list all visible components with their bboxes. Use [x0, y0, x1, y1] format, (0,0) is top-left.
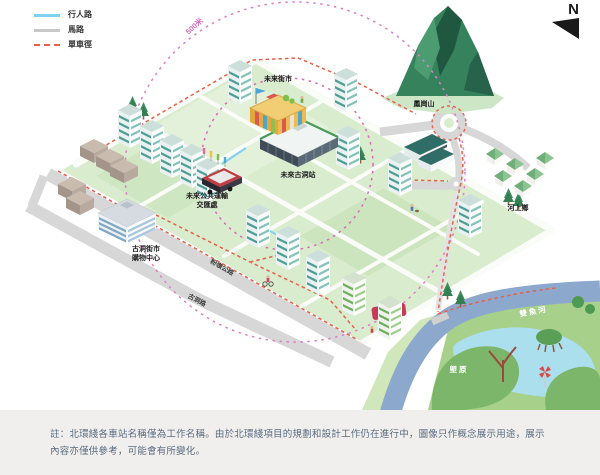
market-label: 未來街市: [264, 74, 292, 83]
footnote-bar: 註：北環綫各車站名稱僅為工作名稱。由於北環綫項目的規劃和設計工作仍在進行中，圖像…: [0, 410, 600, 475]
pedestrian-figure: [371, 326, 374, 333]
village-house: [514, 180, 532, 197]
round-tree: [585, 304, 595, 314]
tower-building: [118, 104, 142, 148]
tower-building: [306, 250, 330, 294]
tower-building-green: [378, 296, 402, 340]
pedestrian-figure: [301, 96, 304, 103]
compass: N: [546, 2, 580, 45]
tower-building: [246, 204, 270, 248]
road-line-swatch: [34, 29, 60, 32]
compass-north-label: N: [546, 2, 579, 18]
mall-label-line1: 古洞街市: [132, 244, 160, 253]
village-house: [526, 168, 544, 185]
site-map-illustration: 古洞路 粉嶺公路: [0, 0, 600, 410]
tower-building: [228, 60, 252, 104]
tower-building: [334, 68, 358, 112]
radius-label-top: 500米: [183, 15, 205, 36]
footnote-text: 註：北環綫各車站名稱僅為工作名稱。由於北環綫項目的規劃和設計工作仍在進行中，圖像…: [50, 426, 550, 460]
pti-label-line1: 未來公共運輸: [186, 191, 229, 200]
mountain-label: 鳳崗山: [414, 99, 435, 108]
legend-label-road: 馬路: [68, 25, 84, 35]
legend-item-pedestrian: 行人路: [34, 10, 92, 20]
village-houses: [486, 148, 554, 197]
round-tree: [572, 296, 584, 308]
legend-item-road: 馬路: [34, 25, 92, 35]
tower-building: [276, 226, 300, 270]
legend-label-pedestrian: 行人路: [68, 10, 92, 20]
pti-label-line2: 交匯處: [197, 200, 219, 209]
village-house: [536, 152, 554, 169]
legend: 行人路 馬路 單車徑: [34, 10, 92, 50]
station-label: 未來古洞站: [281, 170, 316, 179]
village-label: 河上鄉: [508, 203, 529, 212]
tower-building: [336, 126, 360, 170]
legend-item-cycle: 單車徑: [34, 40, 92, 50]
map-canvas: 古洞路 粉嶺公路: [0, 0, 600, 410]
legend-label-cycle: 單車徑: [68, 40, 92, 50]
mall-label-line2: 購物中心: [131, 253, 160, 262]
north-arrow-icon: [550, 18, 580, 40]
cycle-line-swatch: [34, 44, 60, 46]
tower-building: [388, 152, 412, 196]
tower-building: [458, 194, 482, 238]
mountain: 鳳崗山: [382, 6, 504, 114]
village-house: [494, 170, 512, 187]
pedestrian-line-swatch: [34, 14, 60, 17]
tower-building-green: [342, 272, 366, 316]
map-page: 古洞路 粉嶺公路: [0, 0, 600, 475]
pond-bush: [536, 329, 562, 345]
wetland-label: 塱原: [450, 364, 469, 374]
